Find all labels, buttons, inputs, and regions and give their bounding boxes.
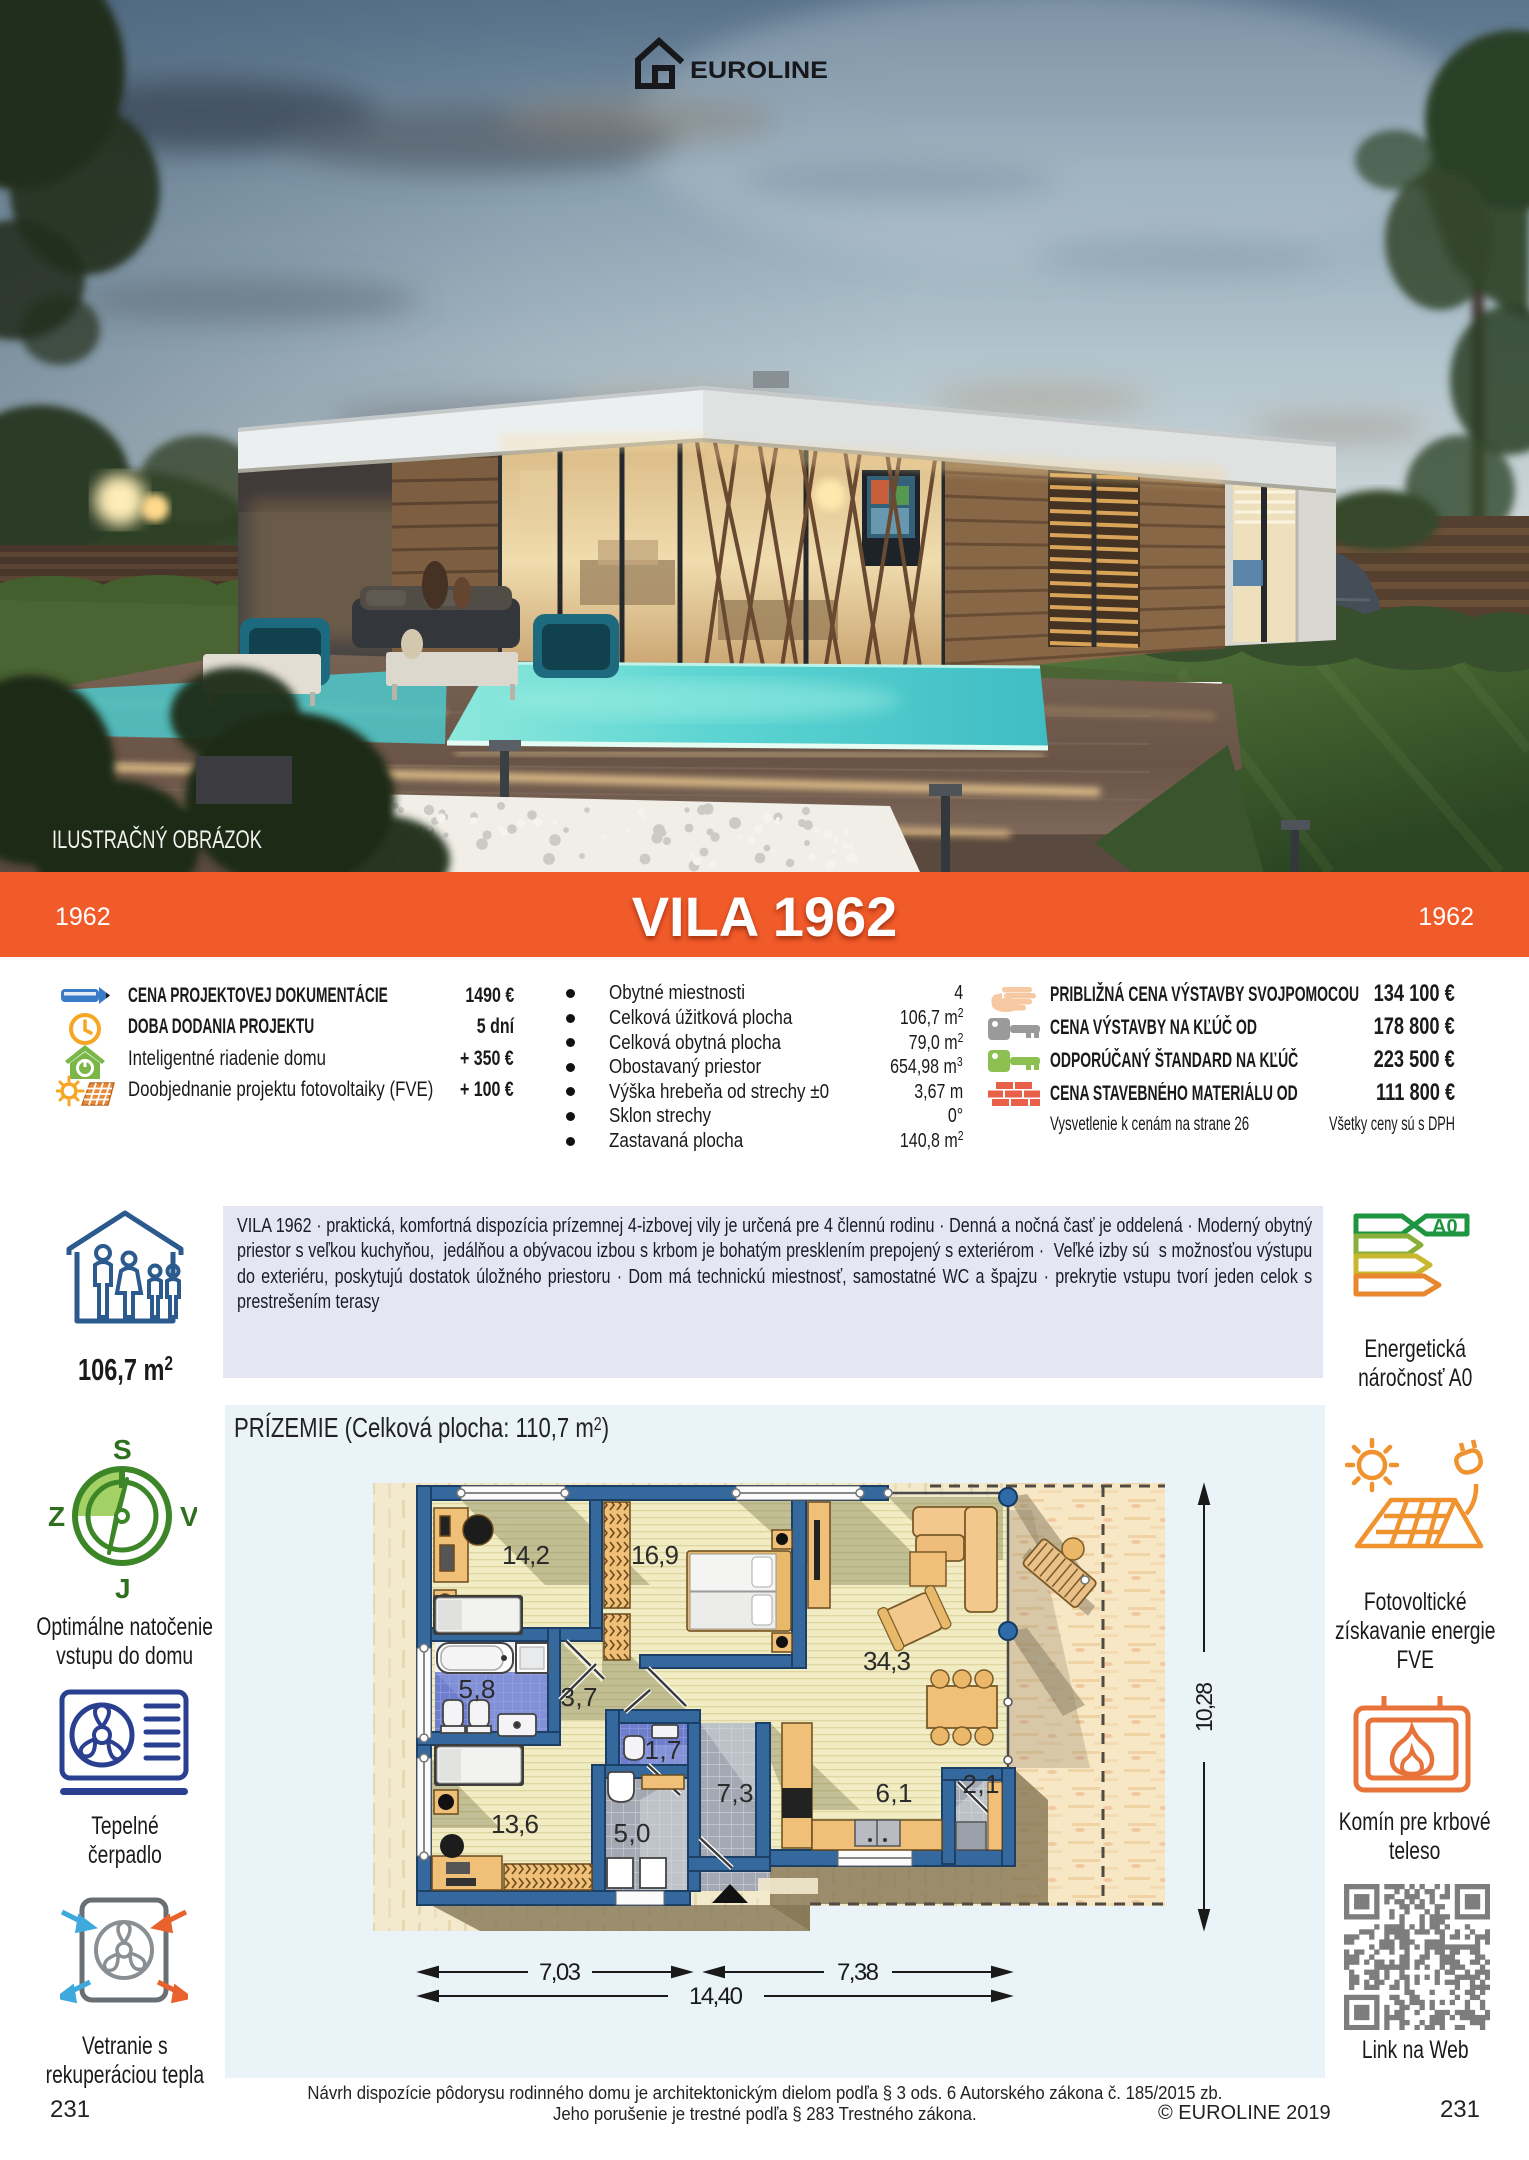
svg-text:S: S xyxy=(113,1438,132,1465)
svg-text:14,2: 14,2 xyxy=(502,1540,550,1570)
svg-text:5,0: 5,0 xyxy=(614,1818,651,1848)
svg-text:J: J xyxy=(115,1573,131,1600)
svg-text:3,7: 3,7 xyxy=(561,1682,598,1712)
svg-text:7,38: 7,38 xyxy=(837,1959,879,1986)
svg-text:V: V xyxy=(180,1501,197,1532)
svg-text:10,28: 10,28 xyxy=(1191,1682,1217,1732)
svg-text:1,7: 1,7 xyxy=(645,1735,682,1765)
svg-text:7,03: 7,03 xyxy=(539,1959,581,1986)
svg-text:13,6: 13,6 xyxy=(491,1809,539,1839)
svg-text:14,40: 14,40 xyxy=(689,1983,743,2010)
svg-text:5,8: 5,8 xyxy=(459,1674,496,1704)
svg-text:Z: Z xyxy=(48,1501,65,1532)
svg-text:16,9: 16,9 xyxy=(631,1540,679,1570)
svg-text:34,3: 34,3 xyxy=(863,1646,911,1676)
svg-text:6,1: 6,1 xyxy=(876,1778,913,1808)
svg-text:7,3: 7,3 xyxy=(717,1778,754,1808)
svg-text:EUROLINE: EUROLINE xyxy=(690,57,828,84)
svg-text:2,1: 2,1 xyxy=(963,1769,1000,1799)
svg-text:A0: A0 xyxy=(1432,1216,1458,1238)
